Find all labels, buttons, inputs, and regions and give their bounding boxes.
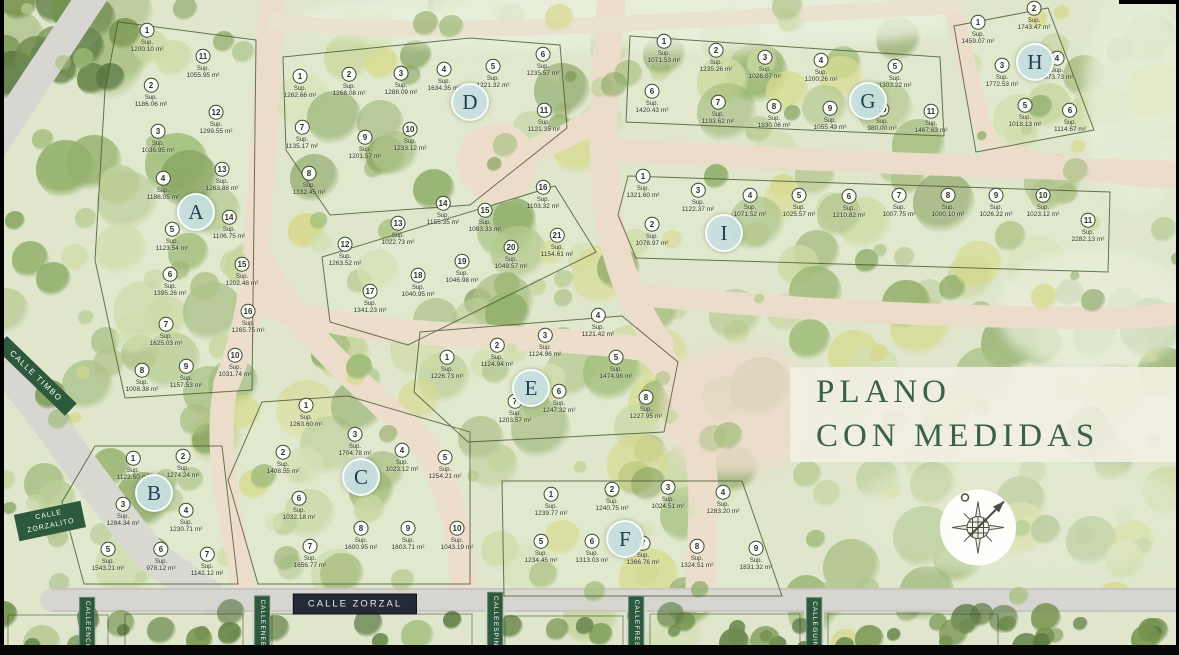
lot-G-7: 7Sup.1193.62 m² (702, 95, 734, 126)
lot-area: 1263.52 m² (329, 261, 362, 268)
frame-bottom (0, 645, 1179, 655)
lot-number: 6 (551, 384, 566, 399)
lot-number: 15 (477, 203, 492, 218)
lot-area: 1124.94 m² (481, 362, 513, 369)
lot-H-6: 6Sup.1114.67 m² (1054, 103, 1086, 134)
lot-number: 1 (126, 451, 141, 466)
lot-E-2: 2Sup.1124.94 m² (481, 338, 513, 369)
lot-C-10: 10Sup.1043.19 m² (441, 521, 474, 552)
lot-number: 12 (208, 105, 223, 120)
lot-number: 3 (757, 50, 772, 65)
lot-number: 15 (234, 257, 249, 272)
lot-number: 10 (227, 348, 242, 363)
lot-D-10: 10Sup.1233.12 m² (394, 122, 427, 153)
lot-number: 1 (543, 487, 558, 502)
lot-number: 17 (362, 284, 377, 299)
lot-D-3: 3Sup.1288.09 m² (385, 66, 418, 97)
lot-number: 9 (357, 130, 372, 145)
lot-number: 5 (437, 450, 452, 465)
lot-area: 1123.54 m² (156, 246, 188, 253)
lot-H-1: 1Sup.1459.07 m² (962, 15, 995, 46)
lot-B-6: 6Sup.978.12 m² (146, 542, 175, 573)
lot-F-9: 9Sup.1831.32 m² (740, 541, 773, 572)
lot-A-12: 12Sup.1299.55 m² (200, 105, 233, 136)
lot-area: 1049.57 m² (495, 264, 528, 271)
lot-I-5: 5Sup.1025.57 m² (783, 188, 816, 219)
lot-area: 1031.74 m² (219, 372, 252, 379)
lot-number: 2 (175, 449, 190, 464)
lot-E-1: 1Sup.1226.73 m² (431, 350, 464, 381)
lot-area: 1467.63 m² (915, 128, 948, 135)
lot-C-8: 8Sup.1600.95 m² (345, 521, 378, 552)
lot-number: 4 (156, 171, 171, 186)
lot-area: 1625.03 m² (150, 341, 183, 348)
lot-number: 9 (400, 521, 415, 536)
lot-D-18: 18Sup.1040.95 m² (402, 268, 435, 299)
block-badge-C: C (342, 458, 380, 496)
lot-number: 5 (533, 534, 548, 549)
lot-number: 3 (538, 328, 553, 343)
lot-number: 10 (449, 521, 464, 536)
lot-area: 1227.95 m² (630, 414, 663, 421)
lot-number: 10 (1035, 188, 1050, 203)
lot-area: 1124.96 m² (529, 352, 561, 359)
lot-area: 1186.05 m² (147, 195, 179, 202)
lot-area: 1142.12 m² (191, 571, 223, 578)
lot-area: 1055.95 m² (187, 73, 220, 80)
lot-area: 1055.49 m² (814, 125, 847, 132)
lot-number: 8 (766, 99, 781, 114)
lot-area: 1135.17 m² (286, 144, 318, 151)
lot-F-8: 8Sup.1324.51 m² (681, 539, 714, 570)
lot-area: 1324.51 m² (681, 563, 714, 570)
lot-D-20: 20Sup.1049.57 m² (495, 240, 528, 271)
lot-area: 1000.10 m² (932, 212, 965, 219)
lot-area: 1025.57 m² (783, 212, 816, 219)
lot-area: 1018.13 m² (1009, 122, 1042, 129)
lot-area: 1226.73 m² (431, 374, 464, 381)
lot-D-2: 2Sup.1268.08 m² (333, 67, 366, 98)
lot-number: 11 (195, 49, 210, 64)
lot-number: 12 (337, 237, 352, 252)
lot-number: 11 (537, 103, 552, 118)
lot-area: 1284.34 m² (107, 521, 140, 528)
lot-number: 7 (200, 547, 215, 562)
lot-number: 2 (341, 67, 356, 82)
lot-G-2: 2Sup.1235.26 m² (700, 43, 733, 74)
lot-area: 1193.62 m² (702, 119, 734, 126)
lot-number: 5 (608, 350, 623, 365)
lot-number: 1 (139, 23, 154, 38)
lot-area: 1474.98 m² (600, 374, 633, 381)
block-badge-H: H (1016, 43, 1054, 81)
lot-number: 2 (644, 217, 659, 232)
lot-number: 8 (638, 390, 653, 405)
lot-number: 20 (503, 240, 518, 255)
lot-area: 1201.57 m² (349, 154, 382, 161)
lot-A-6: 6Sup.1395.26 m² (154, 267, 187, 298)
lot-F-4: 4Sup.1283.20 m² (707, 485, 740, 516)
lot-D-9: 9Sup.1201.57 m² (349, 130, 382, 161)
lot-B-2: 2Sup.1274.24 m² (167, 449, 200, 480)
lot-area: 1408.55 m² (267, 469, 300, 476)
lot-number: 3 (150, 124, 165, 139)
lot-number: 6 (291, 491, 306, 506)
lot-number: 8 (940, 188, 955, 203)
block-badge-E: E (512, 369, 550, 407)
lot-I-7: 7Sup.1007.75 m² (883, 188, 916, 219)
lot-number: 14 (222, 210, 237, 225)
lot-number: 4 (715, 485, 730, 500)
lot-area: 1600.95 m² (345, 545, 378, 552)
compass-rose-icon (939, 489, 1017, 572)
hedge-box (505, 616, 623, 648)
lot-area: 1186.06 m² (135, 102, 167, 109)
lot-number: 8 (689, 539, 704, 554)
lot-number: 2 (1026, 1, 1041, 16)
lot-area: 1313.03 m² (576, 558, 609, 565)
lot-A-4: 4Sup.1186.05 m² (147, 171, 179, 202)
lot-D-15: 15Sup.1083.33 m² (469, 203, 502, 234)
lot-I-9: 9Sup.1026.22 m² (980, 188, 1013, 219)
lot-number: 16 (240, 304, 255, 319)
lot-area: 1046.98 m² (446, 278, 479, 285)
lot-number: 2 (144, 78, 159, 93)
lot-D-1: 1Sup.1262.66 m² (284, 69, 317, 100)
lot-area: 1157.53 m² (170, 383, 202, 390)
lot-area: 1263.60 m² (290, 422, 323, 429)
lot-number: 5 (165, 222, 180, 237)
title-card: PLANO CON MEDIDAS (790, 367, 1179, 462)
lot-number: 8 (353, 521, 368, 536)
lot-C-4: 4Sup.1023.12 m² (386, 443, 419, 474)
lot-D-19: 19Sup.1046.98 m² (446, 254, 479, 285)
lot-area: 1071.52 m² (734, 212, 767, 219)
lot-number: 4 (394, 443, 409, 458)
lot-D-6: 6Sup.1235.57 m² (527, 47, 560, 78)
lot-number: 9 (748, 541, 763, 556)
lot-A-13: 13Sup.1263.88 m² (206, 162, 239, 193)
lot-area: 1032.18 m² (283, 515, 316, 522)
lot-number: 3 (994, 58, 1009, 73)
block-badge-I: I (705, 214, 743, 252)
lot-number: 5 (485, 59, 500, 74)
lot-number: 6 (1062, 103, 1077, 118)
lot-F-6: 6Sup.1313.03 m² (576, 534, 609, 565)
lot-number: 5 (791, 188, 806, 203)
lot-area: 1743.47 m² (1018, 25, 1051, 32)
lot-area: 1268.08 m² (333, 91, 366, 98)
lot-F-5: 5Sup.1234.45 m² (525, 534, 558, 565)
lot-area: 1114.67 m² (1054, 127, 1086, 134)
lot-area: 1262.66 m² (284, 93, 317, 100)
lot-area: 1239.77 m² (535, 511, 568, 518)
lot-number: 7 (302, 539, 317, 554)
lot-A-15: 15Sup.1202.48 m² (226, 257, 259, 288)
lot-G-9: 9Sup.1055.49 m² (814, 101, 847, 132)
lot-D-12: 12Sup.1263.52 m² (329, 237, 362, 268)
lot-number: 4 (591, 308, 606, 323)
lot-area: 1023.12 m² (1027, 212, 1060, 219)
hedge-box (272, 614, 472, 648)
lot-number: 13 (390, 216, 405, 231)
lot-number: 19 (454, 254, 469, 269)
lot-area: 1106.75 m² (213, 234, 245, 241)
lot-number: 7 (891, 188, 906, 203)
lot-H-5: 5Sup.1018.13 m² (1009, 98, 1042, 129)
lot-area: 1210.82 m² (833, 213, 866, 220)
lot-G-8: 8Sup.1930.06 m² (758, 99, 791, 130)
lot-A-1: 1Sup.1200.10 m² (131, 23, 164, 54)
lot-G-1: 1Sup.1071.53 m² (648, 34, 681, 65)
lot-area: 1240.75 m² (596, 506, 629, 513)
block-badge-F: F (606, 520, 644, 558)
lot-A-8: 8Sup.1008.38 m² (126, 363, 159, 394)
lot-E-4: 4Sup.1121.42 m² (582, 308, 614, 339)
hedge-box (828, 614, 998, 648)
lot-C-2: 2Sup.1408.55 m² (267, 445, 300, 476)
lot-number: 16 (536, 180, 551, 195)
lot-number: 3 (393, 66, 408, 81)
lot-D-14: 14Sup.1155.35 m² (427, 196, 459, 227)
lot-number: 6 (584, 534, 599, 549)
lot-C-5: 5Sup.1254.21 m² (429, 450, 462, 481)
site-plan-map: A1Sup.1200.10 m²2Sup.1186.06 m²3Sup.1036… (0, 0, 1179, 655)
lot-area: 1234.45 m² (525, 558, 558, 565)
lot-area: 978.12 m² (146, 566, 175, 573)
lot-number: 2 (490, 338, 505, 353)
lot-area: 1103.32 m² (527, 204, 559, 211)
lot-number: 3 (115, 497, 130, 512)
lot-number: 1 (292, 69, 307, 84)
lot-area: 1230.71 m² (170, 527, 203, 534)
lot-number: 14 (436, 196, 451, 211)
lot-area: 1235.57 m² (527, 71, 560, 78)
lot-area: 1656.77 m² (294, 563, 327, 570)
lot-area: 1603.71 m² (392, 545, 425, 552)
lot-number: 6 (644, 84, 659, 99)
lot-number: 11 (1080, 213, 1095, 228)
lot-area: 1024.51 m² (652, 504, 685, 511)
lot-number: 2 (275, 445, 290, 460)
lot-number: 1 (298, 398, 313, 413)
lot-area: 1235.26 m² (700, 67, 733, 74)
lot-B-5: 5Sup.1543.21 m² (92, 542, 125, 573)
lot-number: 4 (742, 188, 757, 203)
lot-I-8: 8Sup.1000.10 m² (932, 188, 965, 219)
lot-number: 1 (656, 34, 671, 49)
lot-I-6: 6Sup.1210.82 m² (833, 189, 866, 220)
lot-number: 11 (923, 104, 938, 119)
block-badge-G: G (849, 82, 887, 120)
lot-A-14: 14Sup.1106.75 m² (213, 210, 245, 241)
lot-number: 3 (660, 480, 675, 495)
lot-number: 3 (347, 427, 362, 442)
lot-area: 1831.32 m² (740, 565, 773, 572)
lot-area: 1154.61 m² (541, 252, 573, 259)
lot-area: 1008.38 m² (126, 387, 159, 394)
lot-A-2: 2Sup.1186.06 m² (135, 78, 167, 109)
lot-area: 1395.26 m² (154, 291, 187, 298)
lot-area: 1071.53 m² (648, 58, 681, 65)
lot-area: 1288.09 m² (385, 90, 418, 97)
lot-area: 1202.48 m² (226, 281, 259, 288)
lot-area: 2282.13 m² (1072, 237, 1105, 244)
lot-area: 1026.07 m² (749, 74, 782, 81)
lot-B-4: 4Sup.1230.71 m² (170, 503, 203, 534)
lot-G-3: 3Sup.1026.07 m² (749, 50, 782, 81)
lot-number: 10 (402, 122, 417, 137)
lot-G-5: 5Sup.1303.22 m² (879, 59, 912, 90)
lot-area: 1083.33 m² (469, 227, 502, 234)
lot-area: 1366.76 m² (627, 560, 660, 567)
lot-number: 21 (550, 228, 565, 243)
lot-D-7: 7Sup.1135.17 m² (286, 120, 318, 151)
street-label-calle-zorzal: CALLE ZORZAL (293, 594, 417, 615)
lot-area: 1122.37 m² (682, 207, 714, 214)
lot-number: 18 (410, 268, 425, 283)
lot-area: 1254.21 m² (429, 474, 462, 481)
lot-area: 1704.78 m² (339, 451, 372, 458)
lot-D-21: 21Sup.1154.61 m² (541, 228, 573, 259)
lot-number: 2 (604, 482, 619, 497)
lot-area: 1026.22 m² (980, 212, 1013, 219)
lot-F-2: 2Sup.1240.75 m² (596, 482, 629, 513)
lot-H-3: 3Sup.1772.53 m² (986, 58, 1019, 89)
lot-number: 1 (439, 350, 454, 365)
lot-area: 1299.55 m² (200, 129, 233, 136)
lot-area: 1303.22 m² (879, 83, 912, 90)
lot-area: 1274.24 m² (167, 473, 200, 480)
lot-D-11: 11Sup.1121.35 m² (528, 103, 560, 134)
lot-F-3: 3Sup.1024.51 m² (652, 480, 685, 511)
block-badge-D: D (451, 83, 489, 121)
lot-number: 7 (295, 120, 310, 135)
lot-area: 1233.12 m² (394, 146, 427, 153)
lot-A-7: 7Sup.1625.03 m² (150, 317, 183, 348)
lot-B-3: 3Sup.1284.34 m² (107, 497, 140, 528)
lot-area: 1420.43 m² (636, 108, 669, 115)
lot-C-6: 6Sup.1032.18 m² (283, 491, 316, 522)
lot-area: 1203.57 m² (499, 418, 532, 425)
lot-number: 8 (134, 363, 149, 378)
lot-area: 1332.45 m² (293, 190, 326, 197)
lot-I-1: 1Sup.1321.60 m² (627, 169, 660, 200)
map-title-line2: CON MEDIDAS (816, 415, 1179, 459)
lot-I-3: 3Sup.1122.37 m² (682, 183, 714, 214)
lot-area: 1121.42 m² (582, 332, 614, 339)
lot-C-1: 1Sup.1263.60 m² (290, 398, 323, 429)
lot-I-10: 10Sup.1023.12 m² (1027, 188, 1060, 219)
lot-E-8: 8Sup.1227.95 m² (630, 390, 663, 421)
lot-number: 6 (162, 267, 177, 282)
lot-area: 1459.07 m² (962, 39, 995, 46)
lot-number: 9 (988, 188, 1003, 203)
lot-area: 1283.20 m² (707, 509, 740, 516)
lot-number: 2 (708, 43, 723, 58)
lot-D-8: 8Sup.1332.45 m² (293, 166, 326, 197)
lot-G-6: 6Sup.1420.43 m² (636, 84, 669, 115)
lot-I-11: 11Sup.2282.13 m² (1072, 213, 1105, 244)
lot-number: 3 (691, 183, 706, 198)
lot-number: 4 (178, 503, 193, 518)
lot-C-7: 7Sup.1656.77 m² (294, 539, 327, 570)
lot-number: 7 (711, 95, 726, 110)
lot-I-2: 2Sup.1078.97 m² (636, 217, 669, 248)
lot-number: 7 (158, 317, 173, 332)
lot-area: 1043.19 m² (441, 545, 474, 552)
lot-A-3: 3Sup.1036.95 m² (142, 124, 175, 155)
lot-area: 980.00 m² (867, 126, 896, 133)
lot-number: 4 (813, 53, 828, 68)
lot-number: 6 (841, 189, 856, 204)
lot-area: 1543.21 m² (92, 566, 125, 573)
lot-area: 1036.95 m² (142, 148, 175, 155)
lot-H-2: 2Sup.1743.47 m² (1018, 1, 1051, 32)
lot-area: 1155.35 m² (427, 220, 459, 227)
lot-area: 1772.53 m² (986, 82, 1019, 89)
lot-area: 1078.97 m² (636, 241, 669, 248)
lot-area: 1023.12 m² (386, 467, 419, 474)
lot-number: 4 (436, 62, 451, 77)
lot-D-16: 16Sup.1103.32 m² (527, 180, 559, 211)
lot-area: 1263.88 m² (206, 186, 239, 193)
lot-area: 1040.95 m² (402, 292, 435, 299)
lot-number: 5 (1017, 98, 1032, 113)
lot-A-9: 9Sup.1157.53 m² (170, 359, 202, 390)
lot-number: 6 (154, 542, 169, 557)
lot-B-7: 7Sup.1142.12 m² (191, 547, 223, 578)
frame-left (0, 0, 4, 655)
lot-A-16: 16Sup.1265.75 m² (232, 304, 265, 335)
block-badge-B: B (135, 474, 173, 512)
lot-number: 9 (822, 101, 837, 116)
lot-area: 1321.60 m² (627, 193, 660, 200)
lot-number: 5 (100, 542, 115, 557)
lot-area: 1341.23 m² (354, 308, 387, 315)
frame-top-right (1119, 0, 1179, 4)
lot-C-9: 9Sup.1603.71 m² (392, 521, 425, 552)
lot-G-11: 11Sup.1467.63 m² (915, 104, 948, 135)
lot-G-4: 4Sup.1200.26 m² (805, 53, 838, 84)
lot-area: 1247.32 m² (543, 408, 576, 415)
lot-I-4: 4Sup.1071.52 m² (734, 188, 767, 219)
lot-C-3: 3Sup.1704.78 m² (339, 427, 372, 458)
lot-F-1: 1Sup.1239.77 m² (535, 487, 568, 518)
lot-number: 6 (535, 47, 550, 62)
lot-area: 1200.26 m² (805, 77, 838, 84)
lot-area: 1121.35 m² (528, 127, 560, 134)
hedge-box (650, 614, 800, 648)
lot-number: 1 (970, 15, 985, 30)
lot-number: 13 (214, 162, 229, 177)
lot-E-5: 5Sup.1474.98 m² (600, 350, 633, 381)
lot-A-11: 11Sup.1055.95 m² (187, 49, 220, 80)
lot-E-3: 3Sup.1124.96 m² (529, 328, 561, 359)
lot-D-5: 5Sup.1221.32 m² (477, 59, 510, 90)
lot-number: 8 (301, 166, 316, 181)
lot-area: 1200.10 m² (131, 47, 164, 54)
lot-D-17: 17Sup.1341.23 m² (354, 284, 387, 315)
lot-number: 1 (635, 169, 650, 184)
lot-D-13: 13Sup.1022.73 m² (382, 216, 415, 247)
lot-area: 1022.73 m² (382, 240, 415, 247)
block-badge-A: A (177, 193, 215, 231)
lot-area: 1265.75 m² (232, 328, 265, 335)
lot-number: 5 (887, 59, 902, 74)
lot-A-10: 10Sup.1031.74 m² (219, 348, 252, 379)
lot-area: 1007.75 m² (883, 212, 916, 219)
